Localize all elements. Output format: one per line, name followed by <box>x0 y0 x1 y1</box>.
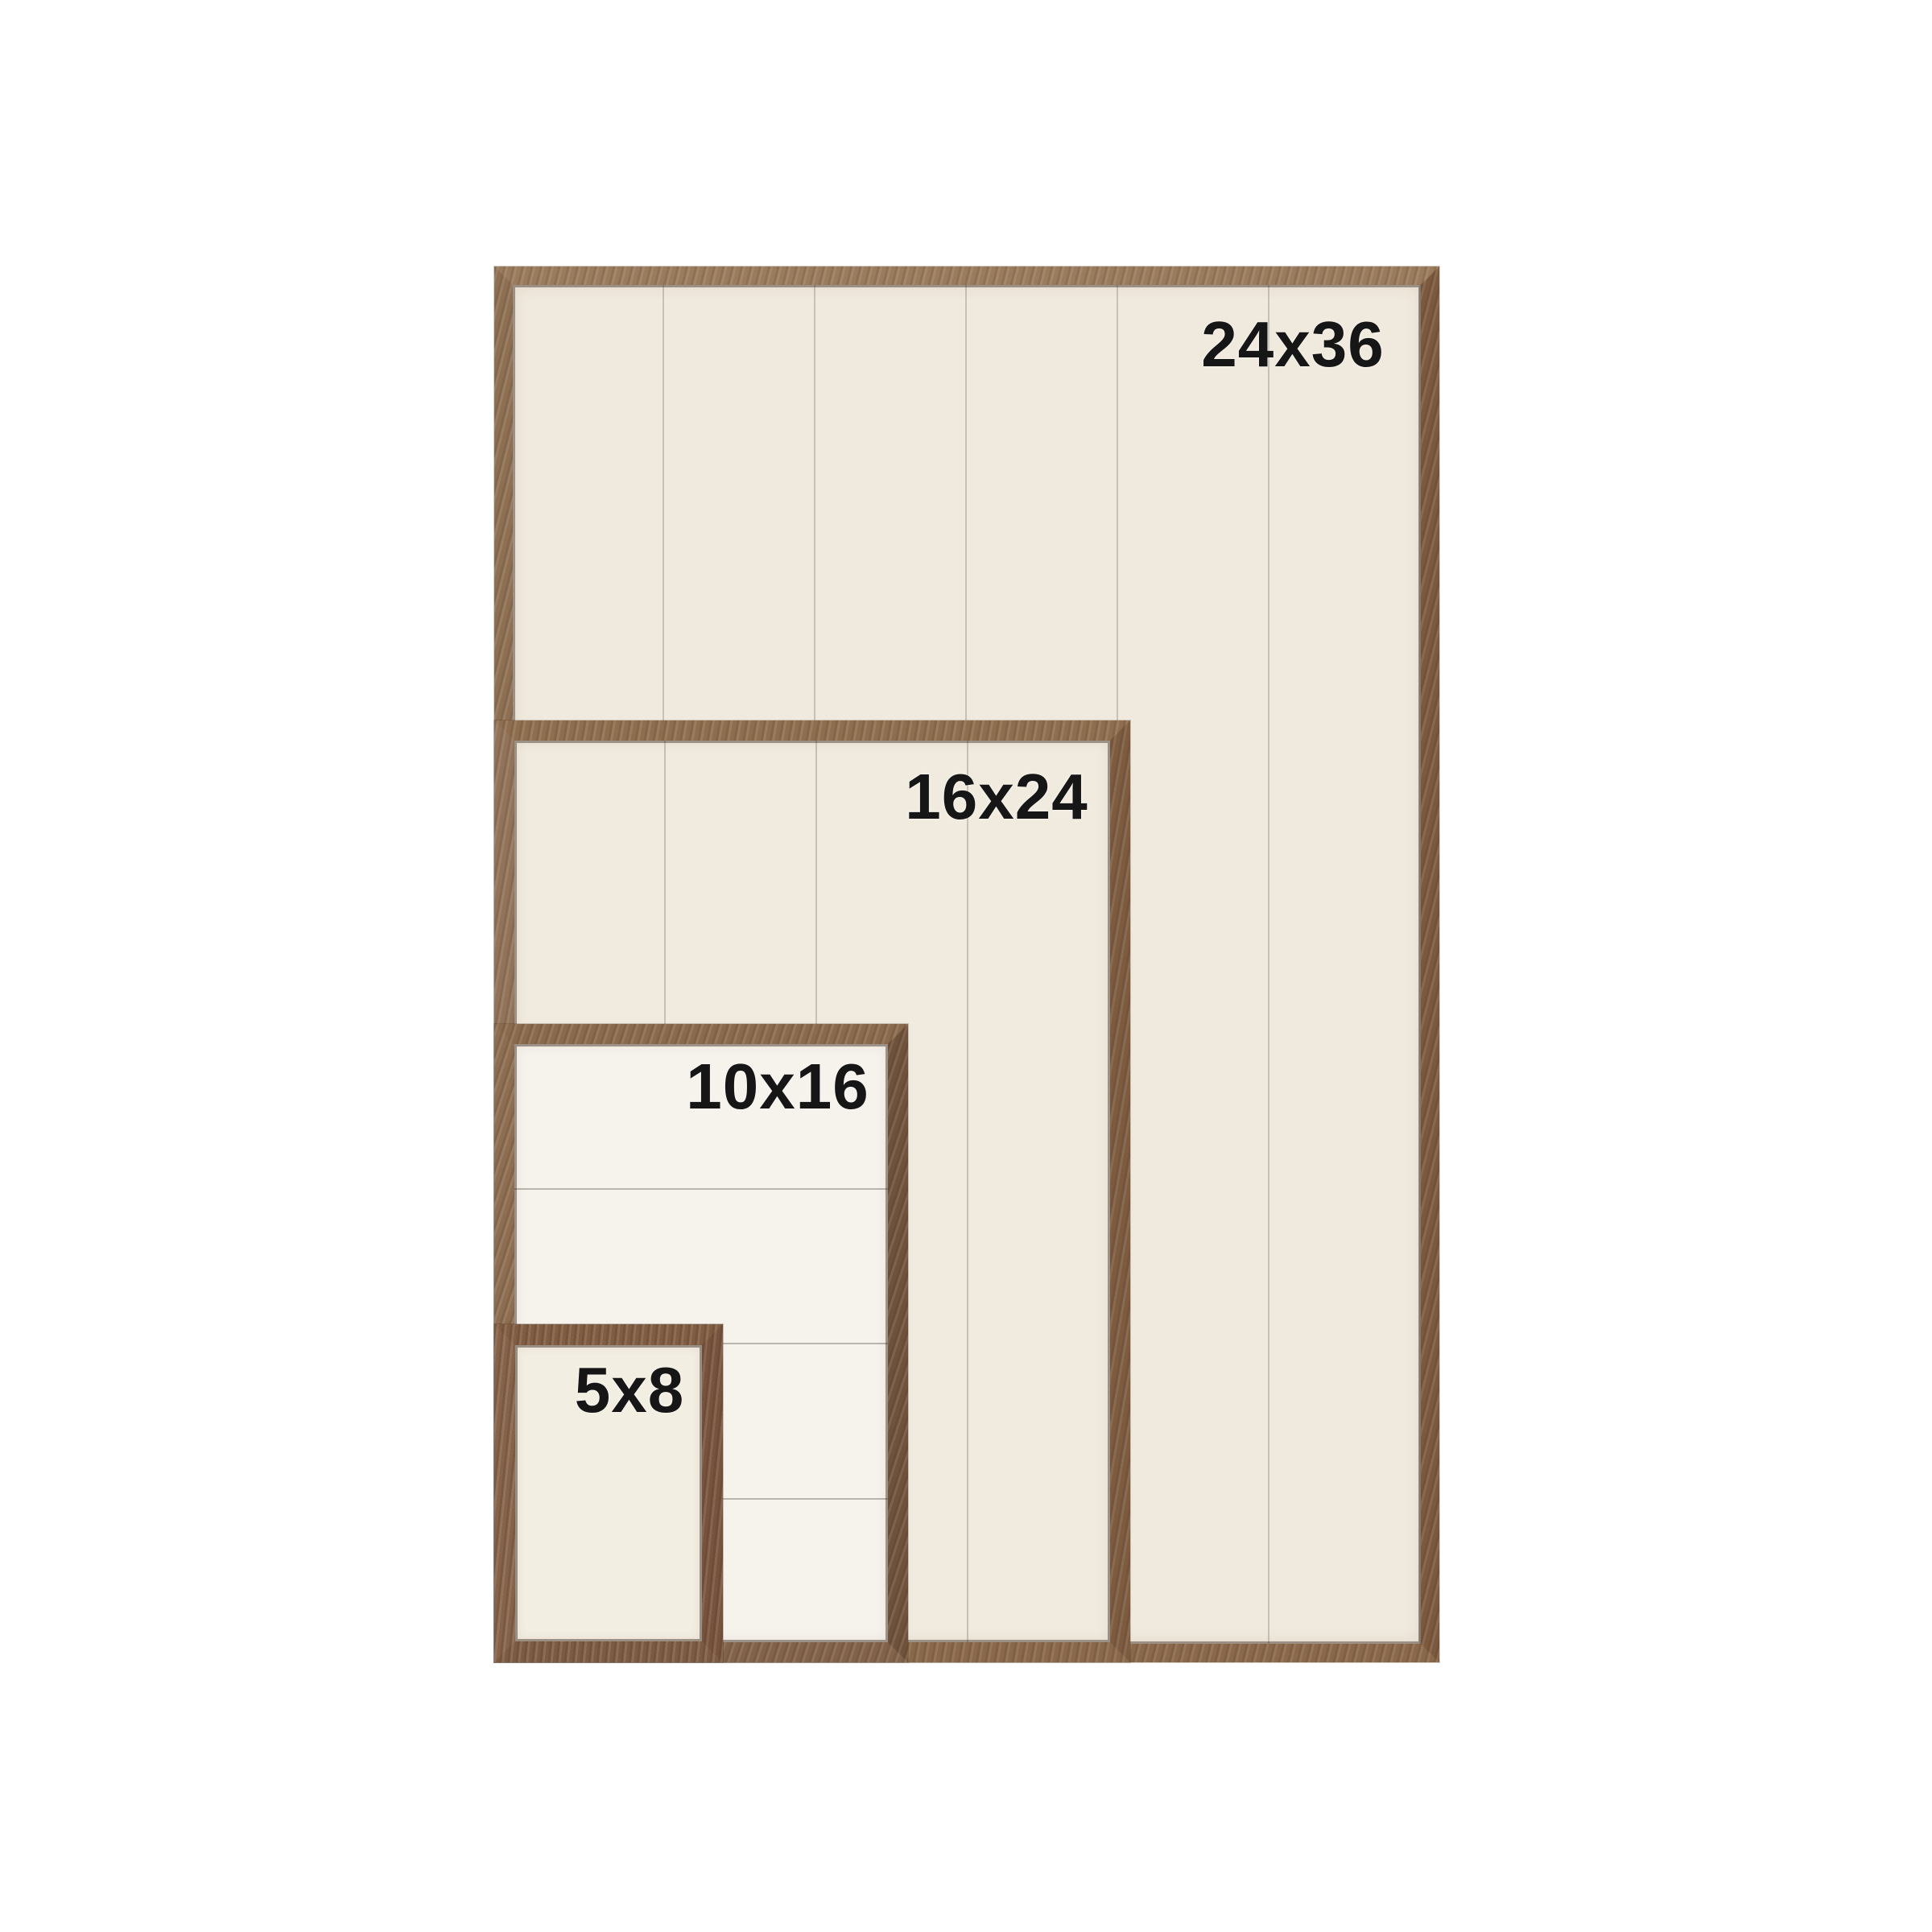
size-comparison-photo: 24x36 16x24 10x16 5x8 <box>0 0 1932 1932</box>
size-label-10x16: 10x16 <box>686 1055 869 1119</box>
size-label-5x8: 5x8 <box>575 1358 684 1422</box>
size-label-16x24: 16x24 <box>905 765 1088 829</box>
size-label-24x36: 24x36 <box>1201 312 1384 377</box>
